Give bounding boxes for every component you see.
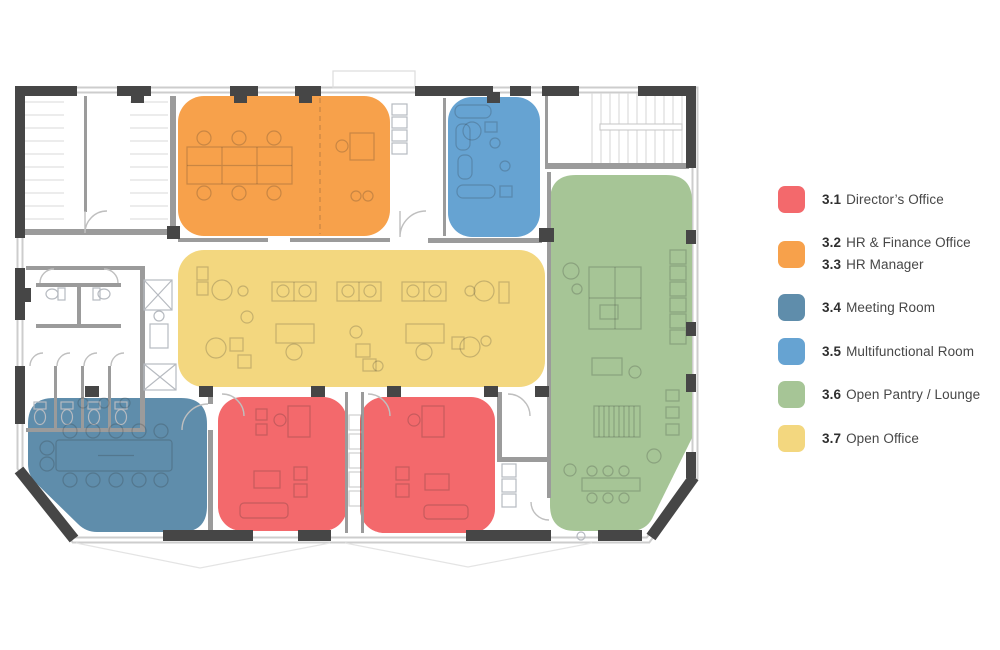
legend-label: 3.1Director’s Office: [822, 189, 944, 211]
legend-item-meeting-room: 3.4Meeting Room: [778, 294, 935, 321]
legend-item-hr-finance: 3.2HR & Finance Office 3.3HR Manager: [778, 232, 971, 276]
zone-directors-office-right: [360, 397, 495, 533]
floor-plan: [0, 0, 1000, 650]
legend-swatch-directors-office: [778, 186, 805, 213]
legend-label: 3.5Multifunctional Room: [822, 341, 974, 363]
legend-swatch-meeting-room: [778, 294, 805, 321]
legend-swatch-open-pantry-lounge: [778, 381, 805, 408]
legend-item-directors-office: 3.1Director’s Office: [778, 186, 944, 213]
page: 3.1Director’s Office 3.2HR & Finance Off…: [0, 0, 1000, 650]
legend-swatch-multifunctional-room: [778, 338, 805, 365]
zone-directors-office-left: [218, 397, 347, 531]
balcony-outline: [333, 71, 415, 88]
legend-label: 3.7Open Office: [822, 428, 919, 450]
legend-item-open-office: 3.7Open Office: [778, 425, 919, 452]
legend-item-open-pantry-lounge: 3.6Open Pantry / Lounge: [778, 381, 980, 408]
legend-label: 3.4Meeting Room: [822, 297, 935, 319]
legend-swatch-hr-finance: [778, 241, 805, 268]
canopy-lines: [76, 543, 592, 568]
legend-label: 3.2HR & Finance Office 3.3HR Manager: [822, 232, 971, 276]
zone-open-office: [178, 250, 545, 387]
legend-swatch-open-office: [778, 425, 805, 452]
legend-item-multifunctional-room: 3.5Multifunctional Room: [778, 338, 974, 365]
legend-label: 3.6Open Pantry / Lounge: [822, 384, 980, 406]
